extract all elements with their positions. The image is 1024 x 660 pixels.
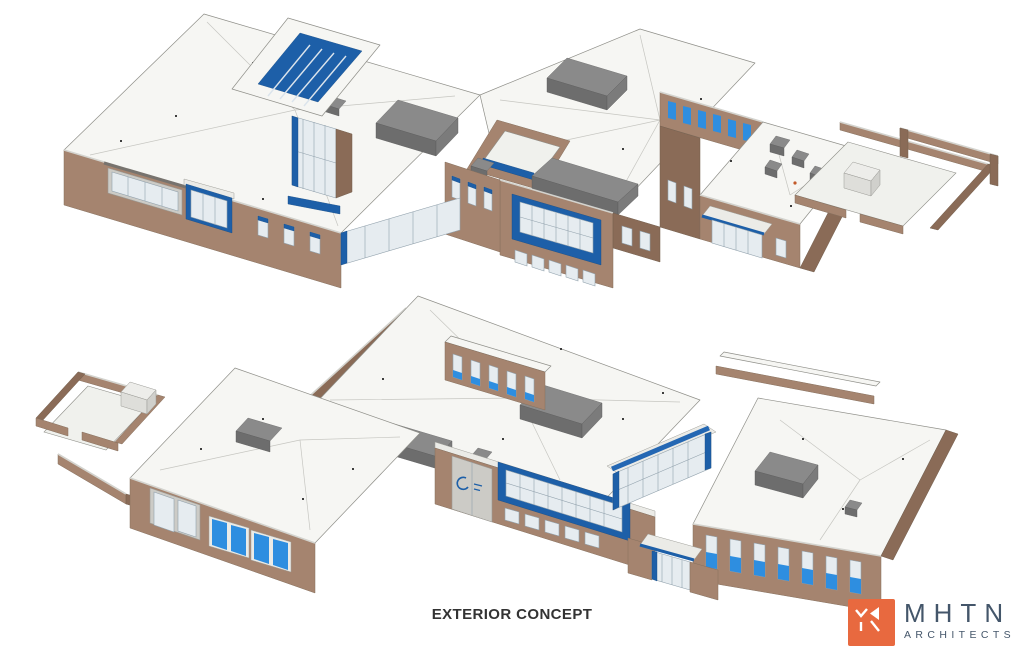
logo-text-block: MHTN ARCHITECTS — [904, 599, 1015, 641]
exterior-rendering-canvas — [0, 0, 1024, 660]
slide: EXTERIOR CONCEPT MHTN ARCHITECTS — [0, 0, 1024, 660]
logo-name: MHTN — [904, 599, 1015, 627]
upper-view — [64, 14, 998, 288]
mhtn-logo: MHTN ARCHITECTS — [848, 599, 1015, 646]
mhtn-logo-icon — [848, 599, 895, 646]
logo-subname: ARCHITECTS — [904, 629, 1015, 641]
lower-view — [36, 296, 958, 612]
service-courtyard — [795, 122, 998, 234]
mhtn-monogram-icon — [848, 599, 888, 639]
